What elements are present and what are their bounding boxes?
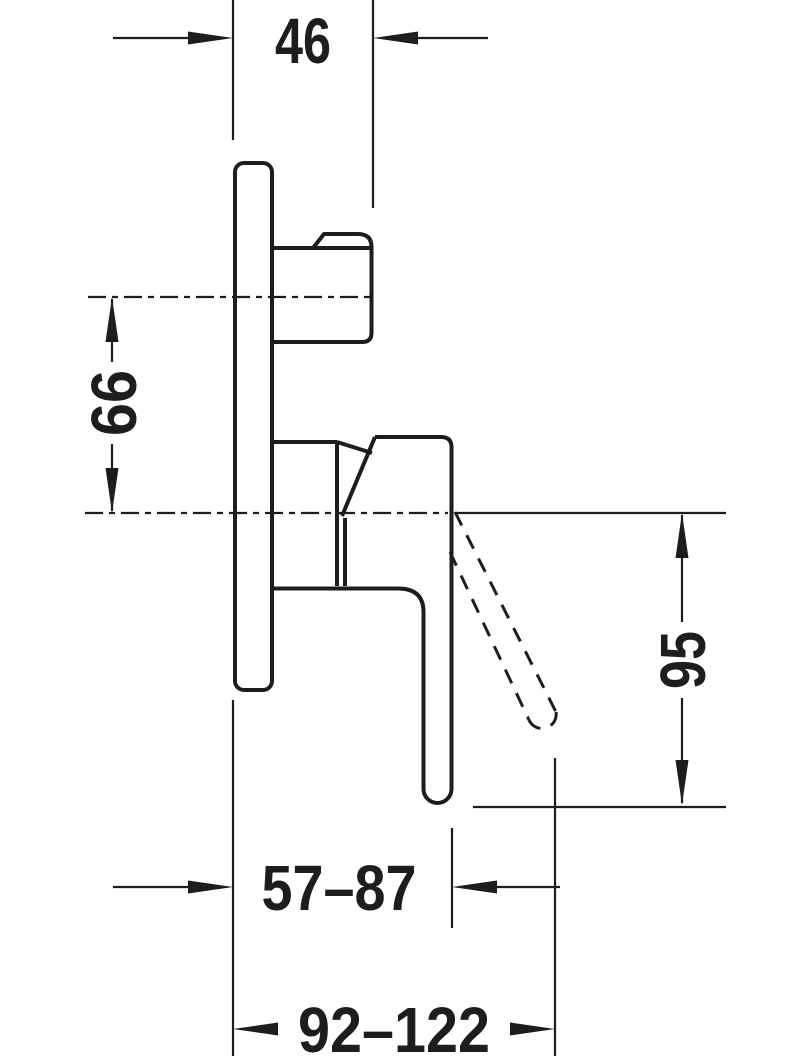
arrowhead-right-icon — [510, 1023, 555, 1036]
technical-drawing-page: 46 66 95 57–87 — [0, 0, 800, 1058]
arrowhead-down-icon — [676, 760, 689, 805]
arrowhead-up-icon — [106, 297, 119, 342]
lever-alt-upper-edge — [455, 512, 556, 712]
upper-body-knob-and-outline — [272, 234, 372, 342]
wall-plate — [235, 163, 272, 690]
lever-alternate-position — [450, 512, 556, 728]
dimension-depth-range: 57–87 — [113, 852, 560, 924]
arrowhead-left-icon — [233, 1023, 278, 1036]
centerlines — [85, 297, 726, 513]
arrowhead-right-icon — [188, 881, 233, 894]
dim-top-width-label: 46 — [275, 5, 331, 77]
upper-valve-body — [272, 234, 372, 342]
arrowhead-left-icon — [452, 881, 497, 894]
dim-depth-range-label: 57–87 — [262, 852, 417, 924]
dimension-max-depth-range: 92–122 — [233, 994, 555, 1058]
wall-plate-outline — [235, 163, 272, 690]
lever-alt-end-cap — [529, 712, 556, 728]
arrowhead-up-icon — [676, 513, 689, 558]
dimension-top-width: 46 — [113, 5, 488, 77]
arrowhead-right-icon — [188, 32, 233, 45]
body-top-slant — [337, 442, 372, 453]
arrowhead-left-icon — [373, 32, 418, 45]
mixer-cartridge-body — [272, 437, 452, 803]
dimension-upper-center-offset: 66 — [78, 297, 150, 513]
lever-down-position-outline — [272, 437, 452, 803]
arrowhead-down-icon — [106, 468, 119, 513]
dimension-lever-drop: 95 — [647, 513, 719, 805]
dim-upper-offset-label: 66 — [78, 370, 150, 436]
mixer-technical-drawing: 46 66 95 57–87 — [0, 0, 800, 1058]
dim-lever-drop-label: 95 — [647, 631, 719, 689]
dim-max-depth-range-label: 92–122 — [298, 994, 490, 1058]
